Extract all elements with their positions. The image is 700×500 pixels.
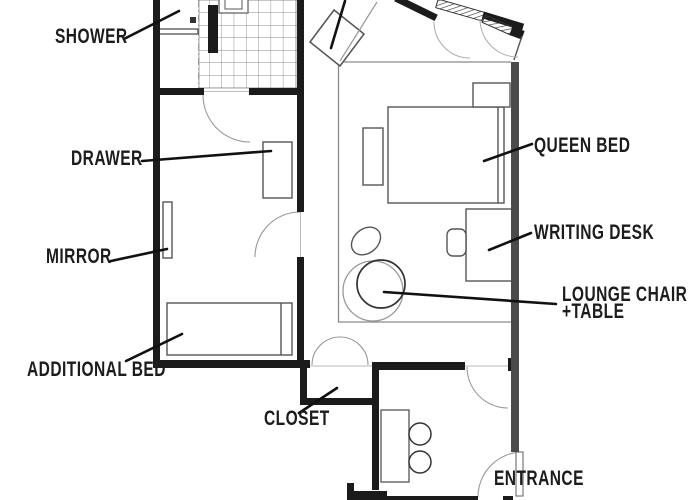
label-lounge-chair: LOUNGE CHAIR +TABLE — [562, 286, 687, 320]
label-mirror: MIRROR — [46, 247, 112, 266]
closet-doors-arcs — [312, 337, 368, 365]
wall — [249, 88, 304, 95]
wall — [372, 362, 379, 490]
bedroom-door-arc — [255, 212, 300, 257]
vestibule-door-arc — [434, 22, 470, 58]
label-additional-bed: ADDITIONAL BED — [27, 360, 166, 379]
wall — [503, 496, 513, 500]
label-closet: CLOSET — [264, 409, 330, 428]
corridor-door-arc — [467, 367, 508, 408]
label-shower: SHOWER — [55, 27, 128, 46]
additional-bed-shape — [167, 303, 292, 355]
wall — [297, 0, 304, 212]
bathroom — [159, 0, 297, 142]
bathroom-door-arc — [203, 95, 250, 142]
toilet-seat — [225, 0, 242, 9]
leader-lounge-chair — [384, 292, 556, 304]
lounge-chair-inner — [357, 260, 405, 308]
stool — [409, 451, 431, 473]
shower-glass-partition — [208, 5, 218, 53]
minibar-counter — [381, 410, 409, 482]
queen-bed-shape — [388, 107, 504, 203]
vanity-divider — [159, 29, 198, 34]
label-queen-bed: QUEEN BED — [534, 136, 630, 155]
writing-desk-shape — [466, 209, 513, 281]
vestibule-table — [310, 10, 364, 66]
corridor — [307, 337, 523, 497]
vestibule-door-leaf — [436, 0, 485, 21]
stool — [409, 423, 431, 445]
pillow-shape — [473, 83, 510, 107]
wall — [297, 257, 304, 361]
lounge-chair-outer — [343, 261, 403, 321]
wall — [372, 362, 465, 370]
wall — [511, 62, 519, 452]
side-table-shape — [346, 222, 386, 261]
bench-shape — [363, 128, 383, 185]
floor-plan: SHOWER DRAWER MIRROR ADDITIONAL BED CLOS… — [0, 0, 700, 500]
desk-chair-shape — [447, 229, 466, 256]
wall — [159, 88, 204, 95]
wall — [380, 496, 478, 500]
main-room — [339, 62, 514, 322]
wall — [394, 0, 438, 21]
label-drawer: DRAWER — [71, 149, 143, 168]
wall — [153, 360, 310, 368]
label-entrance: ENTRANCE — [494, 469, 584, 488]
shower-control — [190, 17, 196, 23]
label-writing-desk: WRITING DESK — [534, 223, 654, 242]
leader-drawer — [142, 151, 271, 161]
wall — [153, 0, 160, 368]
leader-shower — [124, 11, 179, 39]
bedroom-left — [163, 142, 301, 355]
